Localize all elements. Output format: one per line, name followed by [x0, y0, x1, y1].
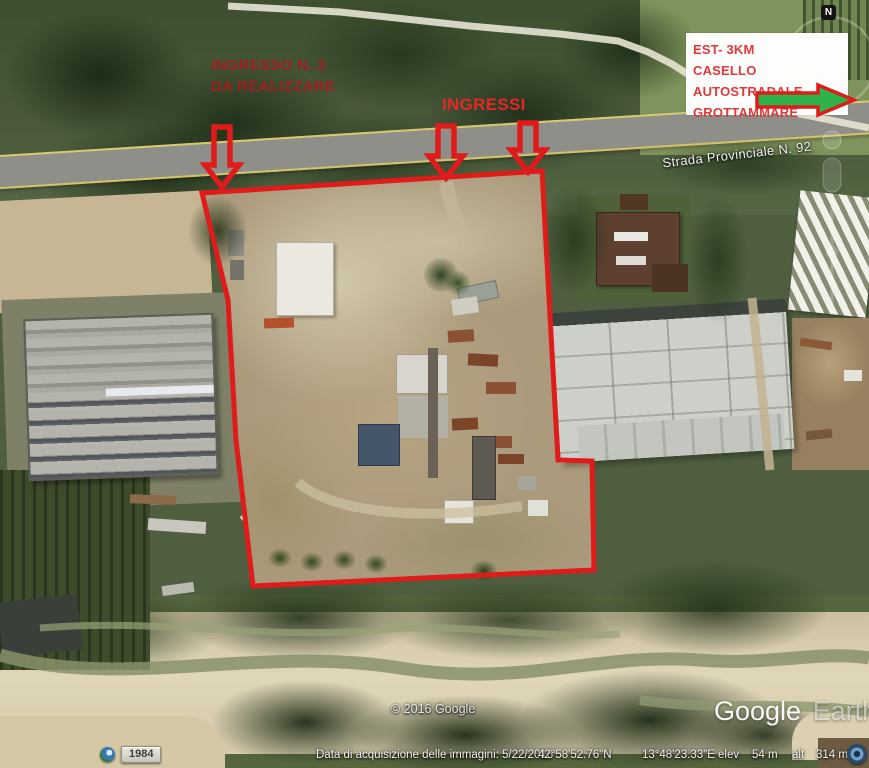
ingressi-label: INGRESSI: [442, 95, 526, 115]
info-box: EST- 3KM CASELLO AUTOSTRADALE GROTTAMMAR…: [686, 33, 848, 115]
info-box-line: GROTTAMMARE: [693, 102, 841, 123]
left-warehouse: [23, 313, 219, 482]
info-box-line: EST- 3KM: [693, 39, 841, 60]
year-badge[interactable]: 1984: [121, 746, 161, 763]
ingresso-note-line2: DA REALIZZARE: [211, 76, 335, 97]
logo-earth: Earth: [813, 696, 869, 726]
logo-google: Google: [714, 696, 801, 726]
greenhouses: [788, 190, 869, 317]
info-box-line: CASELLO AUTOSTRADALE: [693, 60, 841, 102]
google-earth-logo: Google Earth: [714, 696, 869, 727]
ingresso-note-line1: INGRESSO N. 3: [211, 55, 335, 76]
ingresso-note: INGRESSO N. 3 DA REALIZZARE: [211, 55, 335, 97]
time-slider-icon[interactable]: [100, 747, 115, 762]
google-earth-viewport[interactable]: EST- 3KM CASELLO AUTOSTRADALE GROTTAMMAR…: [0, 0, 869, 768]
compass-north-badge[interactable]: N: [821, 5, 836, 20]
right-warehouse: [552, 299, 795, 463]
compass-letter: N: [825, 7, 832, 18]
globe-eye-icon[interactable]: [847, 744, 867, 764]
copyright-watermark: © 2016 Google: [391, 702, 475, 716]
